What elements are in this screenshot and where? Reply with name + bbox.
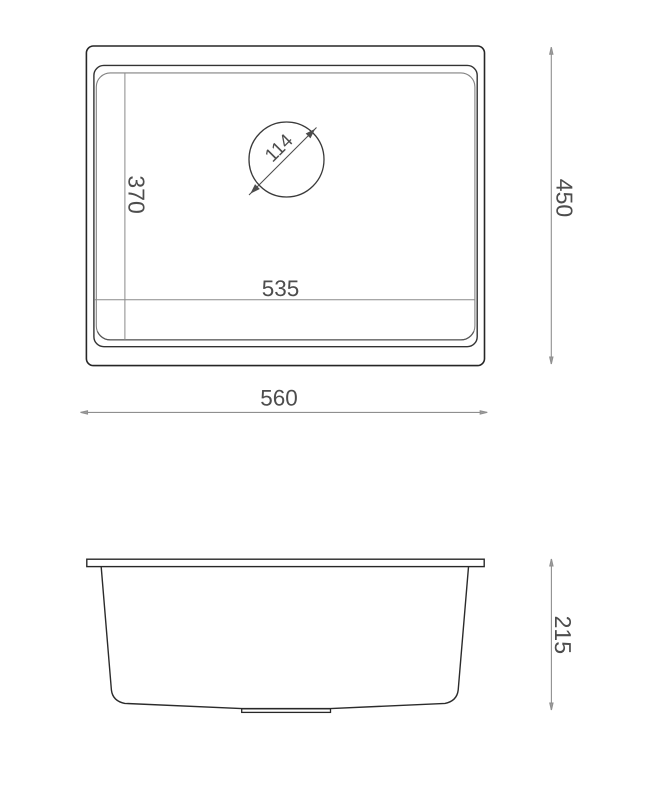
svg-text:560: 560 bbox=[260, 386, 298, 411]
svg-text:370: 370 bbox=[124, 175, 150, 213]
svg-text:535: 535 bbox=[262, 276, 300, 301]
svg-text:215: 215 bbox=[550, 616, 576, 654]
svg-text:114: 114 bbox=[261, 130, 298, 167]
svg-text:450: 450 bbox=[552, 179, 578, 217]
